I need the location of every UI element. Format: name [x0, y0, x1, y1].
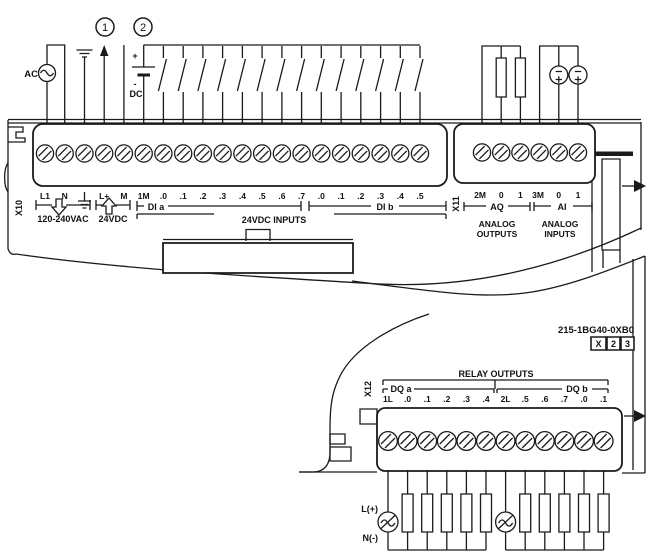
relay-supply-source-icon	[496, 470, 516, 550]
x11-group-brackets	[464, 202, 592, 211]
x12-terminal-block	[360, 408, 622, 471]
di-b-group-label: DI b	[377, 202, 395, 212]
terminal-label: .3	[463, 394, 470, 404]
terminal-label: .4	[239, 191, 246, 201]
ai-group-label: AI	[558, 202, 567, 212]
terminal-label: .2	[199, 191, 206, 201]
analog-inputs-label-2: INPUTS	[544, 229, 576, 239]
relay-outputs-header: RELAY OUTPUTS	[458, 369, 533, 379]
terminal-label: .3	[377, 191, 384, 201]
battery-plus-label: +	[132, 51, 137, 61]
ai-voltage-source-icon	[550, 46, 568, 126]
cpu-wiring-diagram: AC 1 2 + - DC X10 L1 N L+ M 1M .0 .1 .2 …	[0, 0, 652, 554]
relay-supply-source-icon	[378, 470, 398, 550]
relay-load-resistor-icon	[520, 470, 609, 550]
terminal-label: .6	[278, 191, 285, 201]
wiring-diagram-page: AC 1 2 + - DC X10 L1 N L+ M 1M .0 .1 .2 …	[0, 0, 652, 554]
terminal-label: 1	[576, 190, 581, 200]
part-number: 215-1BG40-0XB0	[558, 325, 634, 336]
dq-a-group-label: DQ a	[390, 384, 412, 394]
analog-outputs-label-2: OUTPUTS	[477, 229, 518, 239]
ai-voltage-source-icon	[569, 46, 587, 126]
terminal-label: .3	[219, 191, 226, 201]
terminal-label: .0	[318, 191, 325, 201]
ac-label: AC	[24, 69, 38, 80]
version-box-3: 3	[625, 339, 630, 349]
dc-label: DC	[130, 89, 143, 99]
terminal-label: .1	[424, 394, 431, 404]
version-boxes: X 2 3	[591, 337, 634, 350]
aq-load-resistor-icon	[515, 46, 525, 126]
di-a-group-label: DI a	[148, 202, 166, 212]
terminal-cover-plate	[163, 230, 353, 274]
aq-load-resistor-icon	[496, 46, 506, 126]
callout-1-number: 1	[102, 22, 108, 34]
battery-minus-label: -	[134, 79, 137, 89]
terminal-label: .2	[443, 394, 450, 404]
24vdc-inputs-label: 24VDC INPUTS	[242, 215, 307, 225]
terminal-label: 2L	[501, 394, 511, 404]
relay-supply-plus-label: L(+)	[361, 504, 378, 514]
terminal-label: .6	[541, 394, 548, 404]
expansion-bus-bar	[592, 152, 633, 157]
input-power-wiring	[39, 18, 424, 126]
relay-supply-minus-label: N(-)	[363, 533, 379, 543]
analog-outputs-label-1: ANALOG	[479, 219, 516, 229]
bus-arrow-right-icon	[634, 180, 646, 192]
terminal-label: L+	[99, 191, 109, 201]
wire-n	[47, 45, 65, 126]
terminal-label: .0	[580, 394, 587, 404]
24vdc-group-label: 24VDC	[98, 214, 128, 224]
terminal-label: .4	[482, 394, 489, 404]
terminal-label: .5	[259, 191, 266, 201]
aq-group-label: AQ	[490, 202, 504, 212]
terminal-label: 1	[518, 190, 523, 200]
terminal-label: 0	[556, 190, 561, 200]
callout-2-number: 2	[140, 22, 146, 34]
bus-arrow-right-lower-icon	[634, 410, 646, 422]
version-box-2: 2	[611, 339, 616, 349]
terminal-label: .7	[561, 394, 568, 404]
terminal-label: N	[62, 191, 68, 201]
line-voltage-group-label: 120-240VAC	[37, 214, 89, 224]
terminal-label: 2M	[474, 190, 486, 200]
x12-connector-label: X12	[363, 381, 373, 397]
terminal-label: L1	[40, 191, 50, 201]
din-clip-detail	[8, 127, 25, 142]
expansion-slot	[602, 159, 620, 250]
arrow-down-hollow-icon	[52, 199, 66, 215]
ac-source-icon	[39, 65, 56, 82]
terminal-label: .2	[357, 191, 364, 201]
terminal-label: M	[120, 191, 127, 201]
dq-b-group-label: DQ b	[566, 384, 588, 394]
terminal-label: .1	[600, 394, 607, 404]
terminal-label: .7	[298, 191, 305, 201]
terminal-label: 3M	[532, 190, 544, 200]
terminal-label: .0	[160, 191, 167, 201]
terminal-label: 1L	[383, 394, 393, 404]
x11-connector-label: X11	[451, 196, 461, 212]
terminal-label: .4	[397, 191, 404, 201]
analog-wiring	[482, 46, 587, 126]
arrow-up-icon	[100, 45, 108, 56]
version-box-x: X	[595, 339, 601, 349]
x10-connector-label: X10	[14, 200, 24, 216]
terminal-label: 1M	[138, 191, 150, 201]
x10-terminal-block	[33, 124, 447, 186]
x11-terminal-block	[454, 124, 595, 183]
di-switch-contacts	[158, 46, 423, 126]
earth-ground-icon	[77, 50, 93, 126]
terminal-label: 0	[499, 190, 504, 200]
terminal-label: .1	[180, 191, 187, 201]
terminal-label: .1	[338, 191, 345, 201]
analog-inputs-label-1: ANALOG	[542, 219, 579, 229]
relay-load-resistor-icon	[402, 470, 491, 550]
terminal-label: .5	[416, 191, 423, 201]
terminal-label: .5	[522, 394, 529, 404]
terminal-label: .0	[404, 394, 411, 404]
relay-output-wiring	[378, 470, 609, 550]
